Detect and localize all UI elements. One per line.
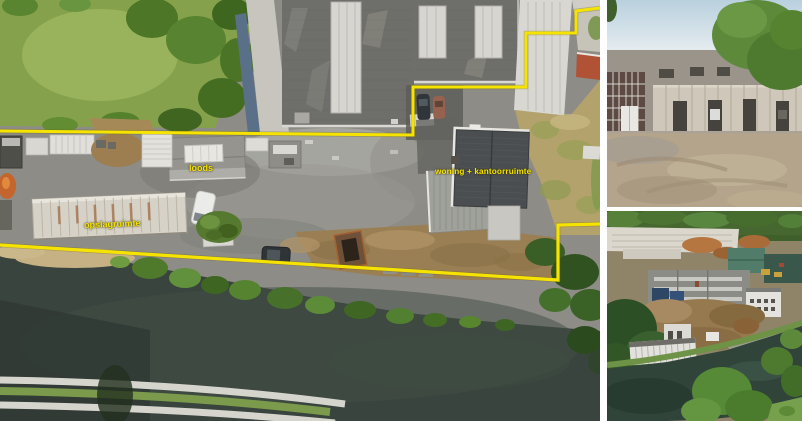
side-photo-industrial-aerial[interactable] bbox=[607, 211, 802, 421]
gravel-foreground bbox=[607, 133, 802, 207]
photo-collage: loods woning + kantoorruimte opslagruimt… bbox=[0, 0, 802, 421]
annotation-opslagruimte: opslagruimte bbox=[84, 218, 141, 230]
facade-photo-art bbox=[607, 0, 802, 207]
main-aerial-photo[interactable]: loods woning + kantoorruimte opslagruimt… bbox=[0, 0, 600, 421]
opslagruimte-building bbox=[32, 193, 187, 240]
annotation-woning-kantoorruimte: woning + kantoorruimte bbox=[435, 167, 531, 177]
excavation-pit bbox=[334, 231, 366, 269]
industrial-aerial-art bbox=[607, 211, 802, 421]
main-aerial-photo-art bbox=[0, 0, 600, 421]
vegetation-top-left bbox=[0, 0, 256, 133]
woning-kantoor-building bbox=[416, 118, 530, 240]
annotation-loods: loods bbox=[189, 163, 213, 173]
side-photo-facade[interactable] bbox=[607, 0, 802, 207]
